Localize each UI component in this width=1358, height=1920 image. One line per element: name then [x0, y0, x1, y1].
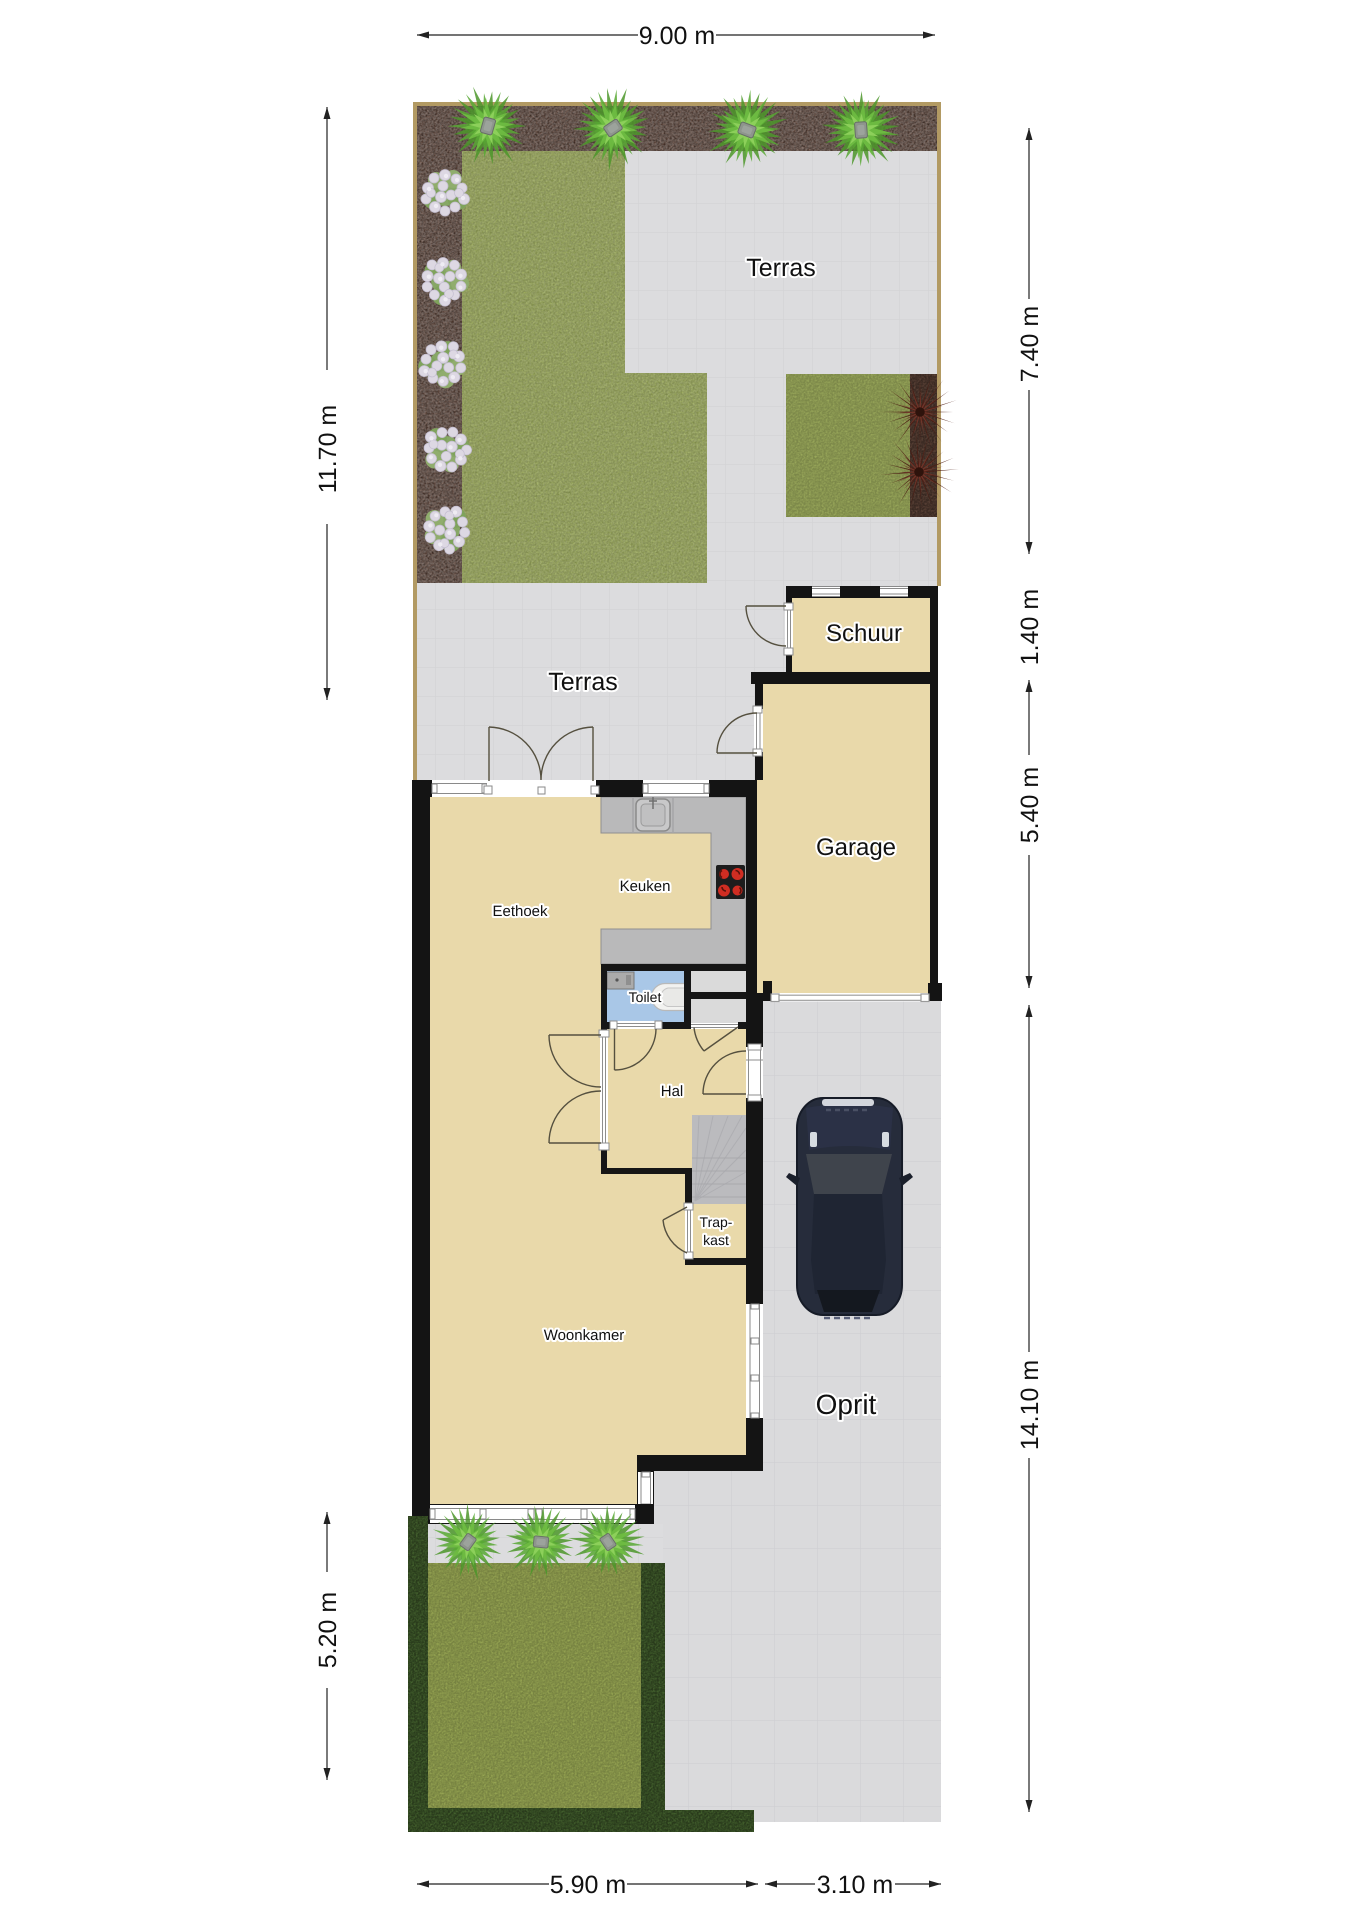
svg-text:9.00 m: 9.00 m: [639, 22, 715, 50]
svg-text:Trap-: Trap-: [700, 1214, 733, 1230]
svg-text:1.40 m: 1.40 m: [1016, 589, 1044, 665]
svg-text:5.20 m: 5.20 m: [314, 1592, 342, 1668]
svg-text:Schuur: Schuur: [826, 620, 902, 647]
svg-text:5.40 m: 5.40 m: [1016, 767, 1044, 843]
svg-text:Garage: Garage: [816, 834, 896, 861]
svg-text:5.90 m: 5.90 m: [550, 1871, 626, 1899]
svg-text:kast: kast: [703, 1232, 729, 1248]
svg-text:Hal: Hal: [661, 1083, 684, 1100]
svg-text:7.40 m: 7.40 m: [1016, 306, 1044, 382]
svg-text:3.10 m: 3.10 m: [817, 1871, 893, 1899]
svg-text:Woonkamer: Woonkamer: [544, 1327, 625, 1344]
svg-text:Terras: Terras: [746, 254, 815, 282]
svg-text:Keuken: Keuken: [620, 878, 671, 895]
svg-text:Toilet: Toilet: [629, 989, 662, 1005]
svg-text:14.10 m: 14.10 m: [1016, 1360, 1044, 1450]
svg-text:Eethoek: Eethoek: [492, 903, 548, 920]
svg-text:Oprit: Oprit: [816, 1389, 877, 1420]
svg-text:Terras: Terras: [548, 668, 617, 696]
svg-text:11.70 m: 11.70 m: [314, 405, 342, 493]
